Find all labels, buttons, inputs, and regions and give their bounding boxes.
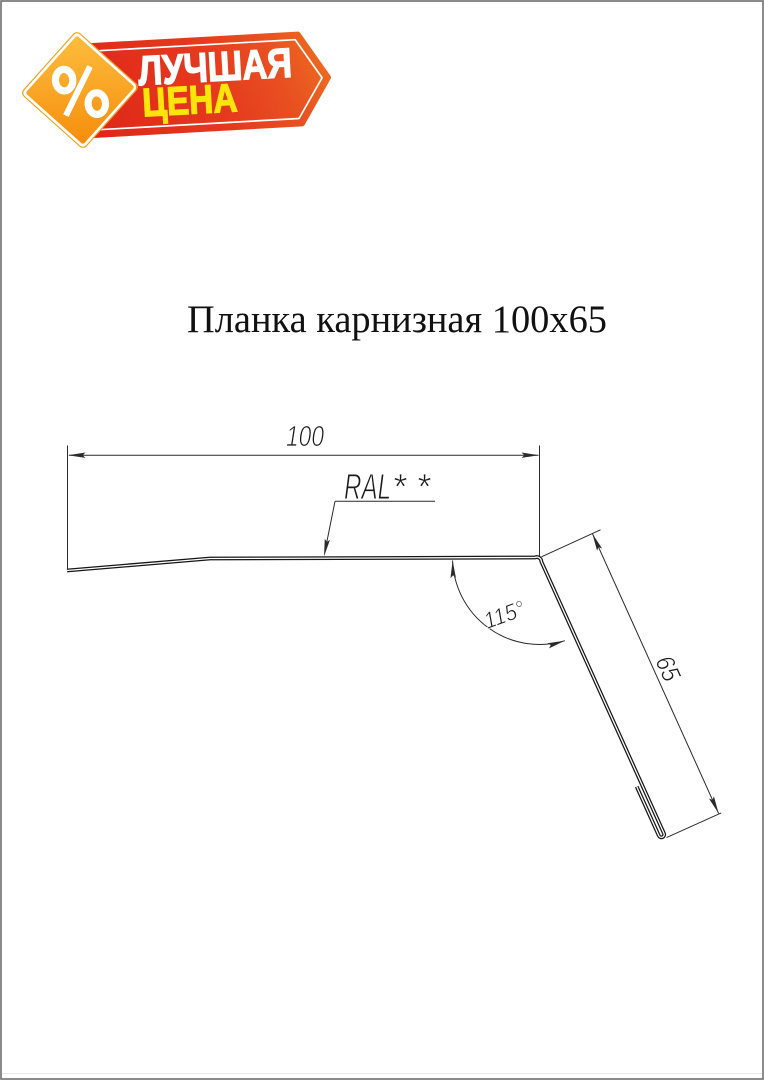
svg-text:ЦЕНА: ЦЕНА [141, 76, 238, 125]
svg-text:* *: * * [392, 466, 431, 507]
svg-text:100: 100 [286, 421, 324, 453]
svg-text:RAL: RAL [344, 466, 391, 507]
svg-text:Планка карнизная 100x65: Планка карнизная 100x65 [187, 298, 607, 341]
